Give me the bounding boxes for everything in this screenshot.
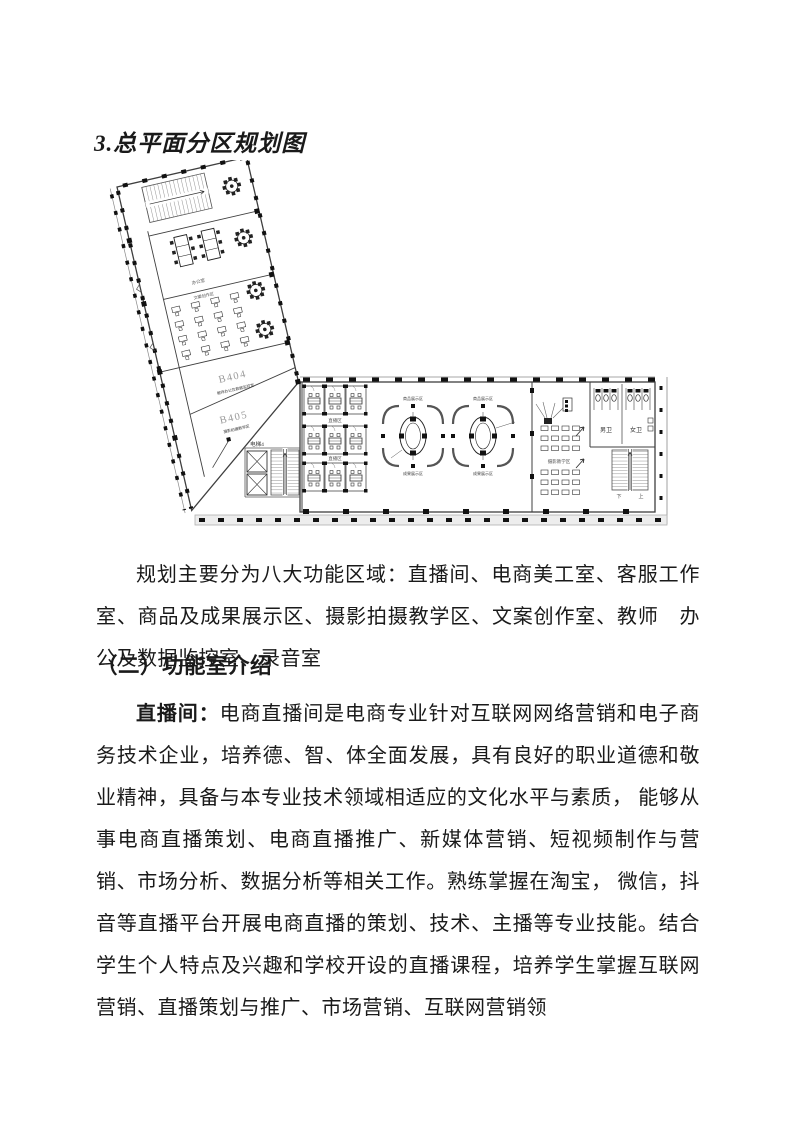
stairs-down-label: 下 [616, 494, 621, 500]
display-zone-label: 商品展示区 [403, 395, 423, 401]
stairs-up-label: 上 [638, 493, 643, 500]
live-room-lead: 直播间： [136, 703, 220, 725]
floor-plan-figure: 直播区 直播区 商品展示区 成果展示区 商品展示区 成果展示区 [95, 160, 680, 535]
display-zone-label: 商品展示区 [473, 395, 493, 401]
mens-toilet-label: 男卫 [600, 427, 612, 434]
junction-staircase [271, 448, 299, 496]
elevator-shafts [247, 451, 267, 495]
junction-core: 电梯4 [245, 440, 300, 497]
live-room-body: 电商直播间是电商专业针对互联网网络营销和电子商务技术企业，培养德、智、体全面发展… [96, 703, 700, 1019]
section-heading-plan: 3.总平面分区规划图 [94, 124, 714, 158]
floor-plan-drawing: 直播区 直播区 商品展示区 成果展示区 商品展示区 成果展示区 [95, 160, 680, 535]
display-zone-label: 成果展示区 [403, 470, 423, 476]
section-heading-intro: （二）功能室介绍 [96, 649, 700, 680]
document-page: 3.总平面分区规划图 [0, 0, 793, 1122]
womens-toilet-label: 女卫 [630, 426, 642, 434]
live-zone-label: 直播区 [328, 417, 342, 424]
live-zone-label: 直播区 [328, 455, 342, 462]
elevator-label: 电梯4 [250, 440, 264, 448]
display-zone-label: 成果展示区 [473, 470, 493, 476]
media-zone-label: 摄影教学区 [548, 458, 571, 465]
paragraph-live-room: 直播间：电商直播间是电商专业针对互联网网络营销和电子商务技术企业，培养德、智、体… [96, 693, 700, 1029]
